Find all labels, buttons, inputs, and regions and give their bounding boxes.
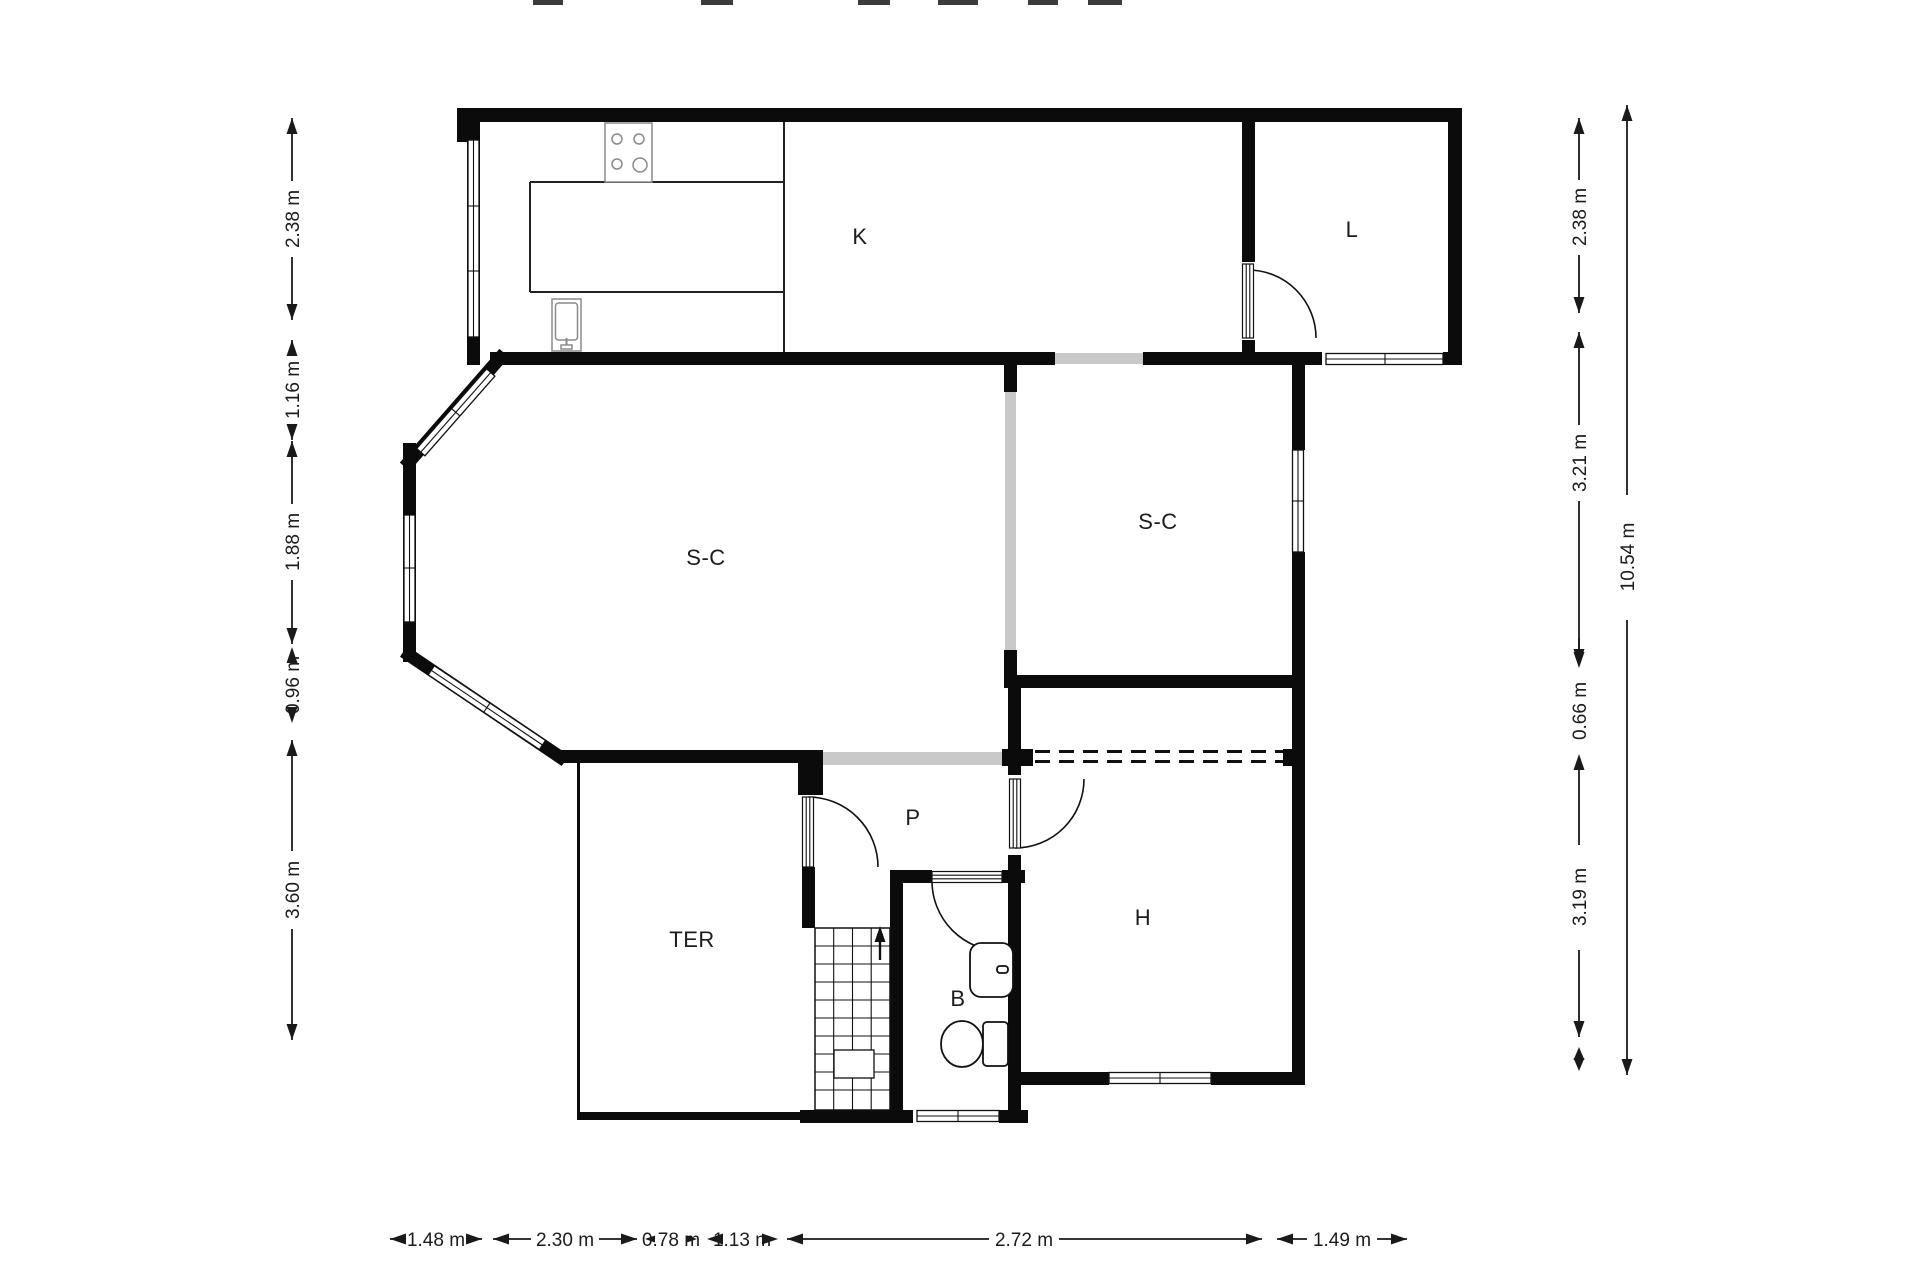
room-label-bedroom: H	[1135, 905, 1151, 930]
dim-label: 3.60 m	[283, 861, 304, 919]
room-label-living-left: S-C	[686, 545, 725, 570]
dim-label: 3.19 m	[1570, 868, 1591, 926]
wall-terrace-stairs	[802, 867, 815, 928]
dim-left-2: 1.16 m	[283, 340, 304, 440]
wall-bedroom-bottom-right	[1211, 1072, 1305, 1085]
dimensions-right-inner: 2.38 m 3.21 m 0.66 m 3.19 m	[1570, 118, 1591, 1071]
wall-laundry-bottom-left	[1143, 352, 1322, 365]
wall-stairs-bottom	[800, 1110, 913, 1123]
room-label-living-right: S-C	[1138, 509, 1177, 534]
dim-label: 2.30 m	[536, 1230, 594, 1251]
dim-bottom-1: 1.48 m	[390, 1230, 482, 1251]
dim-label-overall: 10.54 m	[1618, 523, 1639, 592]
top-edge-artifacts	[533, 0, 1122, 5]
doors	[803, 264, 1317, 951]
window-kitchen-left	[468, 140, 479, 337]
toilet	[941, 1021, 1008, 1067]
dimension-right-outer: 10.54 m	[1618, 105, 1639, 1075]
opening-kitchen-living	[1055, 353, 1143, 364]
wall-kitchen-bottom	[490, 352, 1055, 365]
wall-terrace-left-thin	[577, 763, 580, 1115]
dim-label: 0.66 m	[1570, 682, 1591, 740]
dim-bottom-5: 2.72 m	[787, 1230, 1262, 1251]
dim-bottom-3: 0.78 m	[642, 1230, 700, 1251]
dim-label: 1.16 m	[283, 361, 304, 419]
stairs	[815, 926, 890, 1110]
room-label-kitchen: K	[852, 224, 867, 249]
dimensions-bottom: 1.48 m 2.30 m 0.78 m 1.13 m 2.72 m	[390, 1230, 1407, 1251]
wall-hall-bath-right	[1002, 870, 1025, 883]
window-bay-lower	[428, 666, 545, 750]
wall-terrace-top	[557, 750, 823, 763]
window-bay-upper	[417, 369, 495, 456]
floor-plan-drawing: K L S-C S-C P TER B H 2.38 m 1.16 m 1.88…	[0, 0, 1920, 1280]
dim-left-3: 1.88 m	[283, 441, 304, 644]
window-laundry-bottom	[1326, 354, 1443, 365]
dim-label: 2.72 m	[995, 1230, 1053, 1251]
dim-label: 1.48 m	[407, 1230, 465, 1251]
room-label-bathroom: B	[950, 986, 965, 1011]
wall-terrace-door-corner	[798, 750, 823, 795]
dim-label: 2.38 m	[1570, 188, 1591, 246]
dim-bottom-2: 2.30 m	[493, 1230, 637, 1251]
dim-left-4: 0.96 m	[283, 647, 304, 723]
wall-sc-right-lower	[1292, 552, 1305, 1085]
window-bedroom-bottom	[1109, 1073, 1211, 1084]
wall-hall-bedroom-upper	[1008, 688, 1021, 775]
dashed-overhead-line	[1035, 752, 1283, 762]
dimensions-left: 2.38 m 1.16 m 1.88 m 0.96 m 3.60 m	[283, 118, 304, 1040]
dim-label: 1.49 m	[1313, 1230, 1371, 1251]
wall-stairs-bath	[890, 870, 903, 1123]
window-bay-vertical	[404, 515, 415, 622]
wall-dash-end-block	[1283, 749, 1292, 766]
wall-kitchen-laundry-upper	[1242, 122, 1255, 262]
dim-right-1: 2.38 m	[1570, 118, 1591, 313]
room-label-laundry: L	[1346, 217, 1359, 242]
door-terrace-hallway	[803, 797, 879, 867]
window-bath-bottom	[917, 1111, 999, 1122]
bathroom-sink	[970, 943, 1013, 997]
door-kitchen-laundry	[1243, 264, 1317, 338]
wall-laundry-bottom-corner	[1443, 352, 1462, 365]
stairs-landing	[834, 1050, 874, 1078]
door-hallway-bedroom	[1010, 779, 1085, 848]
wall-sc-bedroom	[1015, 675, 1305, 688]
dim-label: 3.21 m	[1570, 434, 1591, 492]
wall-sc-right-upper	[1292, 365, 1305, 450]
wall-sc-divider-top-stub	[1004, 362, 1017, 392]
dim-left-1: 2.38 m	[283, 118, 304, 320]
dim-left-5: 3.60 m	[283, 740, 304, 1040]
room-label-terrace: TER	[669, 927, 715, 952]
wall-laundry-right	[1448, 108, 1462, 365]
opening-sc-hallway	[823, 752, 1002, 765]
kitchen-sink	[552, 299, 581, 351]
dim-right-wall-tick	[1574, 1047, 1585, 1071]
dim-label: 0.96 m	[283, 656, 304, 714]
door-hallway-bathroom	[932, 872, 1002, 952]
wall-bath-bottom-corner	[999, 1110, 1028, 1123]
stove	[605, 123, 652, 182]
dim-right-3: 0.66 m	[1570, 638, 1591, 770]
dim-label: 2.38 m	[283, 190, 304, 248]
wall-kitchen-laundry-lower	[1242, 340, 1255, 352]
window-sc-right	[1293, 450, 1304, 552]
opening-sc-divider	[1005, 392, 1016, 650]
room-label-hallway: P	[905, 805, 920, 830]
wall-bedroom-bottom-left	[1021, 1072, 1109, 1085]
dim-label: 1.88 m	[283, 513, 304, 571]
dim-bottom-4: 1.13 m	[707, 1230, 778, 1251]
wall-top-exterior	[457, 108, 1462, 122]
dim-right-2: 3.21 m	[1570, 332, 1591, 665]
walls	[403, 108, 1462, 1123]
windows	[404, 140, 1443, 1122]
floor-plan-page: K L S-C S-C P TER B H 2.38 m 1.16 m 1.88…	[0, 0, 1920, 1280]
dim-right-4: 3.19 m	[1570, 770, 1591, 1037]
dim-bottom-6: 1.49 m	[1277, 1230, 1407, 1251]
wall-terrace-bottom	[577, 1112, 803, 1120]
